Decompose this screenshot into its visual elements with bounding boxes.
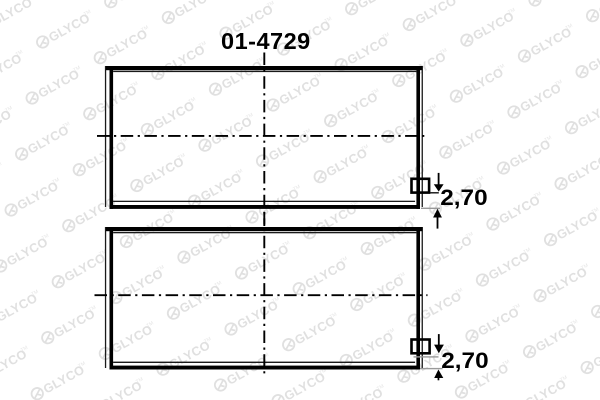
svg-text:2,70: 2,70 [440, 185, 487, 210]
svg-text:2,70: 2,70 [441, 348, 488, 373]
svg-text:01-4729: 01-4729 [221, 28, 311, 54]
